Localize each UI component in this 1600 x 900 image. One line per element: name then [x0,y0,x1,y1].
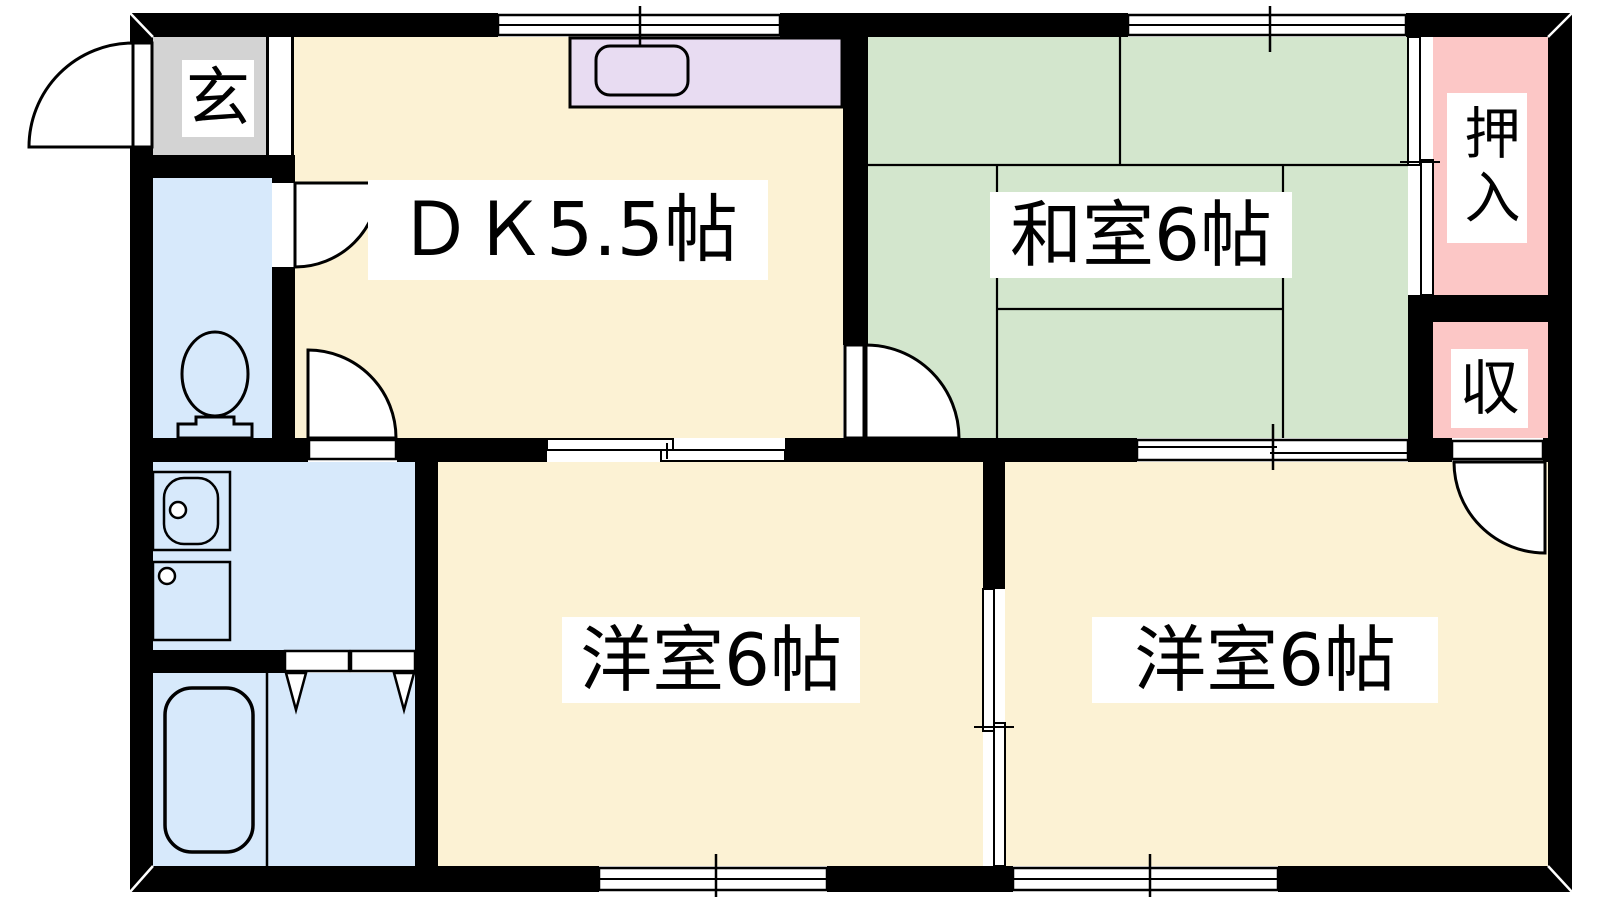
bathtub-icon [165,673,267,866]
folding-door-symbol-bathroom [285,651,415,710]
door-swing-arc-washroom [308,350,397,462]
window-symbol-bottom-left [599,854,827,897]
sliding-door-symbol-dk-bedroom [547,439,785,461]
window-symbol-top-washitsu [1128,6,1406,52]
washbasin-icon [153,472,230,550]
sliding-door-symbol-bedroom-divider [974,589,1014,866]
kitchen-sink-icon [596,46,688,95]
window-symbol-bottom-right [1013,854,1278,897]
washing-machine-icon [153,562,230,640]
label-dk: ＤＫ5.5帖 [368,180,768,280]
label-bedroom-right: 洋室6帖 [1092,617,1438,703]
label-bedroom-left: 洋室6帖 [562,617,860,703]
label-genkan: 玄 [182,60,254,137]
toilet-icon [178,332,252,438]
door-swing-arc-toilet [272,183,379,267]
window-symbol-washitsu-bedroom [1137,424,1408,470]
floorplan-canvas: 玄 ＤＫ5.5帖 和室6帖 洋室6帖 洋室6帖 押入 収 [0,0,1600,900]
label-washitsu: 和室6帖 [990,192,1292,278]
label-oshiire: 押入 [1447,93,1527,243]
kitchen-counter [570,38,842,107]
entrance-door-swing-icon [29,43,152,147]
label-storage: 収 [1451,349,1528,428]
door-swing-arc-washitsu [844,345,959,438]
door-swing-arc-bedroom-right [1452,438,1545,553]
